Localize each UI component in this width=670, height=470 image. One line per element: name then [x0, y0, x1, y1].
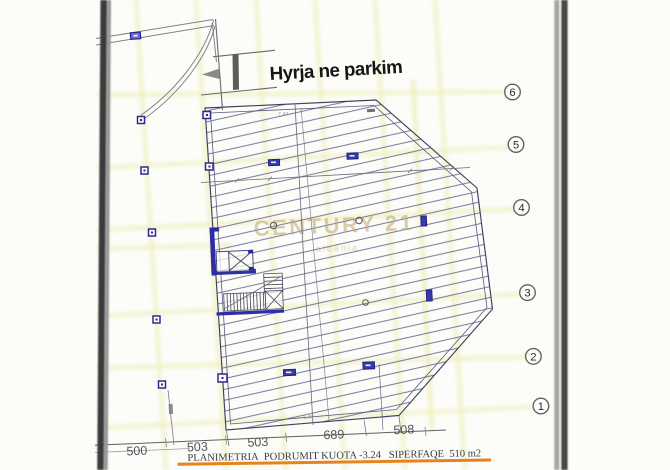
svg-text:3: 3	[524, 288, 530, 300]
svg-text:503: 503	[247, 435, 268, 450]
svg-text:1: 1	[538, 401, 544, 413]
svg-text:500: 500	[126, 444, 147, 459]
svg-text:albania: albania	[316, 242, 359, 254]
svg-text:1.40: 1.40	[303, 414, 314, 421]
svg-text:4: 4	[518, 203, 524, 215]
svg-text:2: 2	[530, 352, 536, 364]
svg-text:7.44: 7.44	[278, 111, 289, 118]
svg-text:5: 5	[513, 140, 519, 152]
svg-text:689: 689	[323, 427, 344, 442]
svg-text:6: 6	[509, 87, 515, 99]
svg-text:508: 508	[393, 422, 414, 437]
